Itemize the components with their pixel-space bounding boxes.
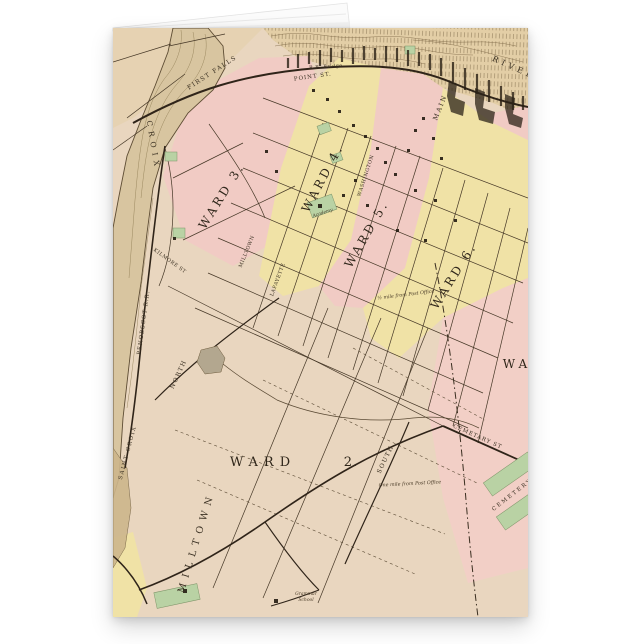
map-label-ward: WARD bbox=[230, 455, 296, 470]
map-label-grammar: Grammar bbox=[295, 591, 318, 597]
product-photo-stage: WARD 3.WARD 4.WARD 5.WARD 6.WARD2.WACROI… bbox=[0, 0, 644, 644]
map-label-school: School bbox=[298, 597, 314, 603]
map-label-wa: WA bbox=[503, 357, 528, 371]
map-label-2: 2. bbox=[344, 455, 358, 470]
map-artwork: WARD 3.WARD 4.WARD 5.WARD 6.WARD2.WACROI… bbox=[113, 28, 528, 617]
academy-building bbox=[318, 204, 322, 208]
greeting-card[interactable]: WARD 3.WARD 4.WARD 5.WARD 6.WARD2.WACROI… bbox=[113, 28, 528, 617]
